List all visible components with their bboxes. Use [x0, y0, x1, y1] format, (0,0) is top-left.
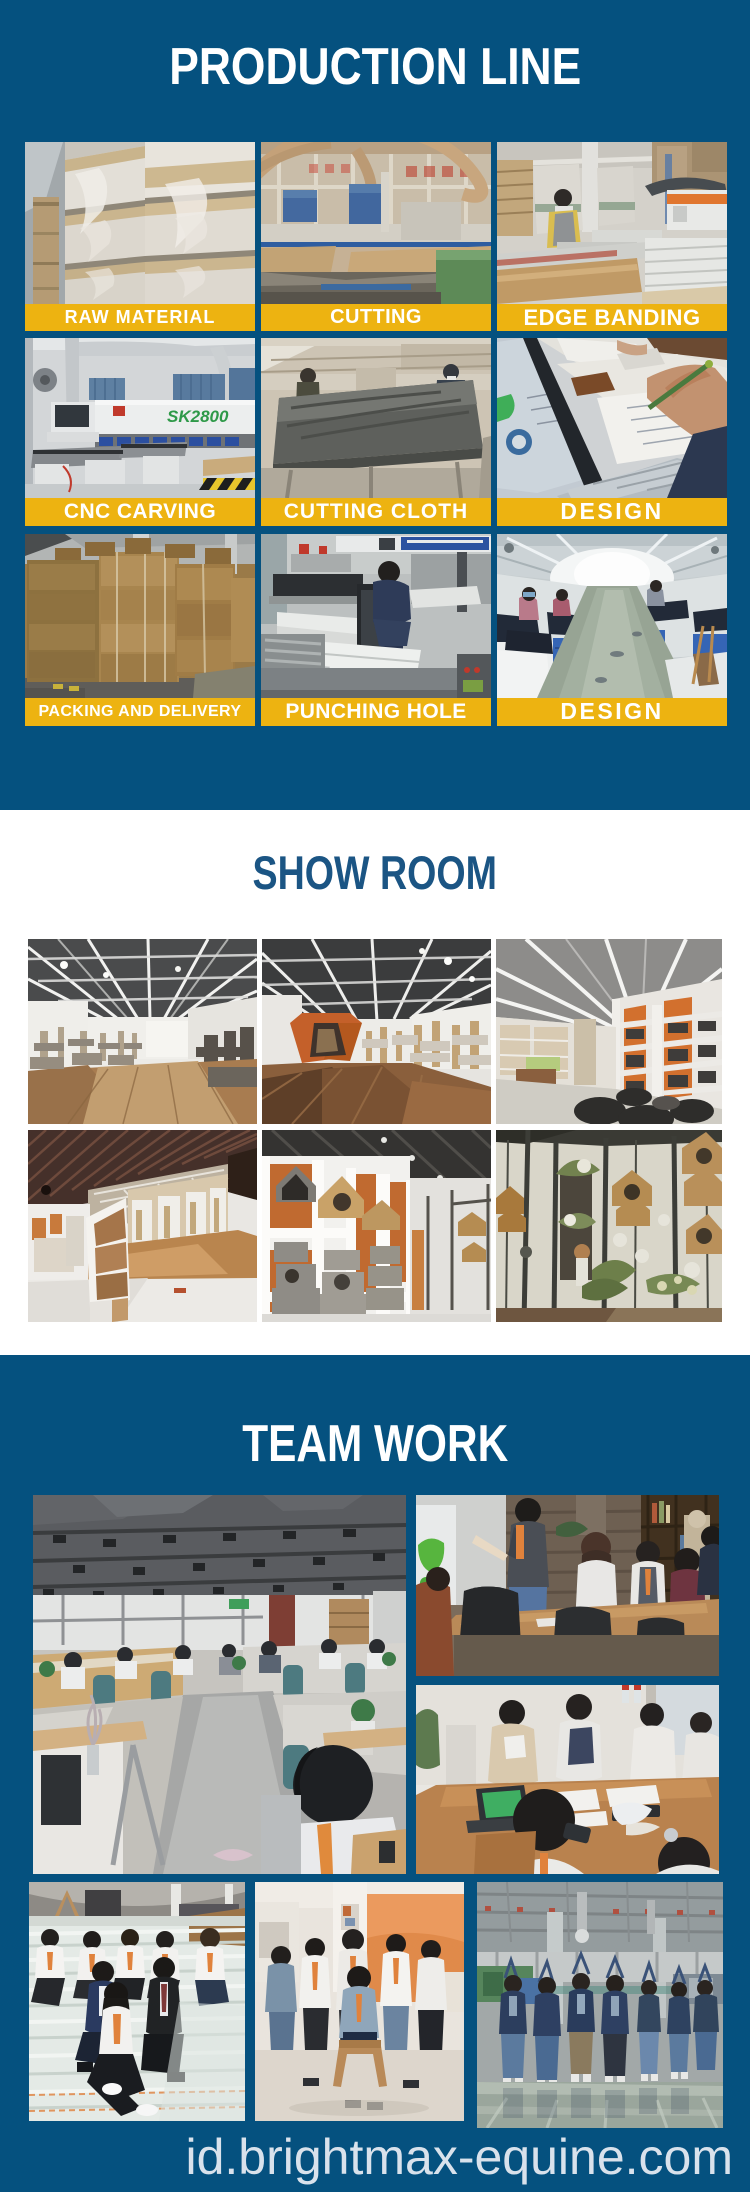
- svg-text:SK2800: SK2800: [167, 407, 229, 426]
